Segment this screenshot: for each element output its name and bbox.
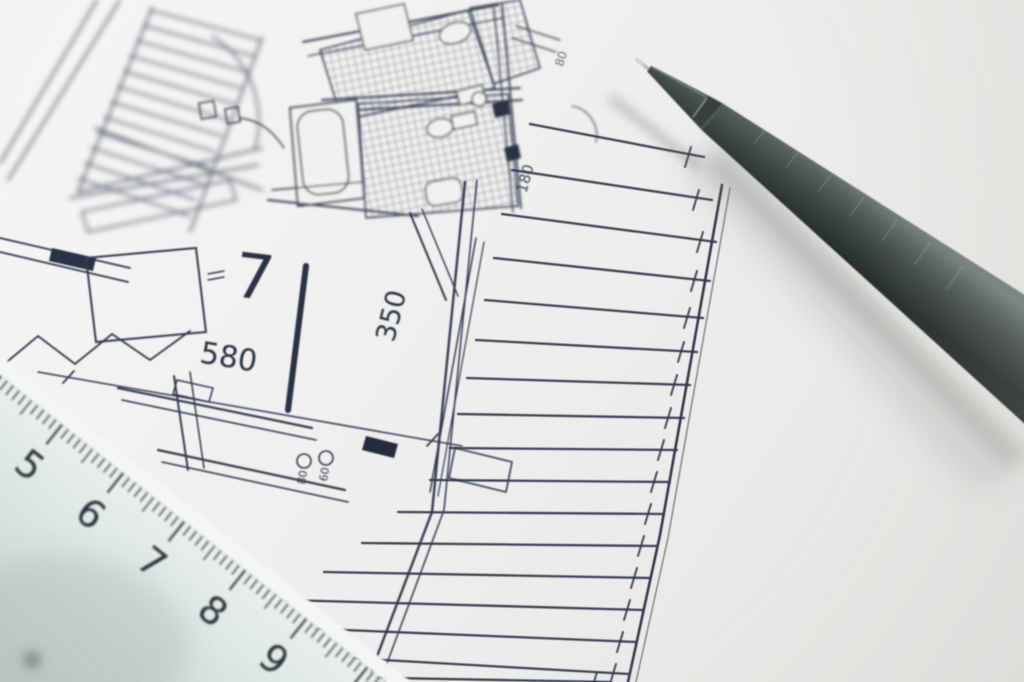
- vignette-overlay: [0, 0, 1024, 682]
- scene-svg: 7 580 350 180 80 80 60 4 5 6 7 8 9: [0, 0, 1024, 682]
- photo-architectural-plan: 7 580 350 180 80 80 60 4 5 6 7 8 9: [0, 0, 1024, 682]
